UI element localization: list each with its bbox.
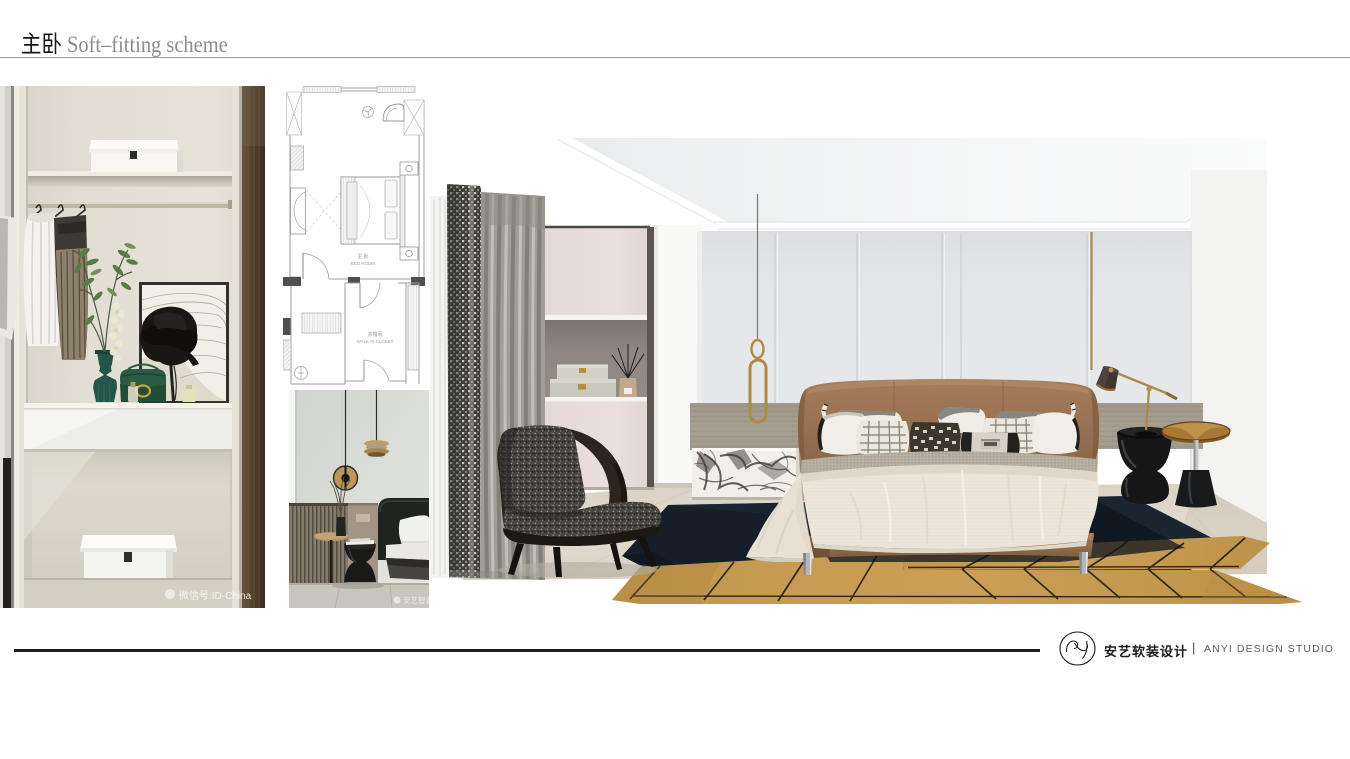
svg-text:WALK IN CLOSET: WALK IN CLOSET xyxy=(357,339,394,344)
svg-text:衣帽间: 衣帽间 xyxy=(367,331,382,338)
svg-text:主 卧: 主 卧 xyxy=(357,253,368,260)
svg-text:BED ROOM: BED ROOM xyxy=(351,261,375,266)
svg-text:微信号:ID-China: 微信号:ID-China xyxy=(179,589,252,602)
svg-text:安艺智造: 安艺智造 xyxy=(403,595,429,605)
